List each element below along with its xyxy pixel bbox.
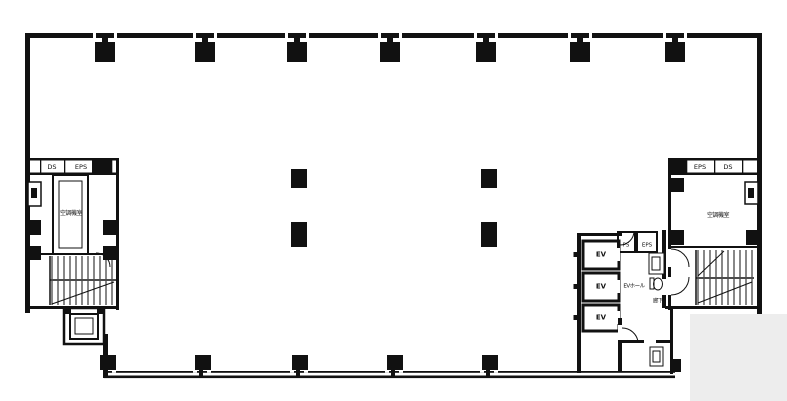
left-service-core bbox=[27, 158, 119, 310]
bottom-columns bbox=[98, 355, 498, 376]
ev-ps-label: PS bbox=[623, 243, 630, 249]
covered-area bbox=[690, 314, 787, 401]
elevator-1-label: EV bbox=[596, 252, 606, 259]
elevator-2-label: EV bbox=[596, 284, 606, 291]
right-service-core bbox=[668, 158, 758, 310]
interior-columns bbox=[291, 169, 497, 247]
outer-walls bbox=[25, 33, 762, 378]
elevator-3-label: EV bbox=[596, 315, 606, 322]
right-machine-room-label: 空調機室 bbox=[707, 213, 729, 219]
left-machine-room-label: 空調機室 bbox=[60, 211, 82, 217]
right-ds-label: DS bbox=[723, 164, 732, 171]
right-stair bbox=[665, 246, 758, 309]
toilet-area bbox=[649, 253, 664, 290]
floor-plan: DS EPS 空調機室 EPS DS 空調機室 EV EV EV PS EPS … bbox=[0, 0, 787, 401]
left-exterior-shaft bbox=[64, 308, 104, 344]
ev-eps-label: EPS bbox=[642, 243, 652, 249]
ev-hall-label: EVホール bbox=[623, 284, 644, 290]
left-ds-label: DS bbox=[47, 164, 56, 171]
left-eps-label: EPS bbox=[75, 164, 87, 171]
right-eps-label: EPS bbox=[694, 164, 706, 171]
floor-plan-drawing bbox=[0, 0, 787, 401]
corridor-label: 廊下 bbox=[653, 299, 663, 305]
left-stair bbox=[25, 253, 119, 309]
